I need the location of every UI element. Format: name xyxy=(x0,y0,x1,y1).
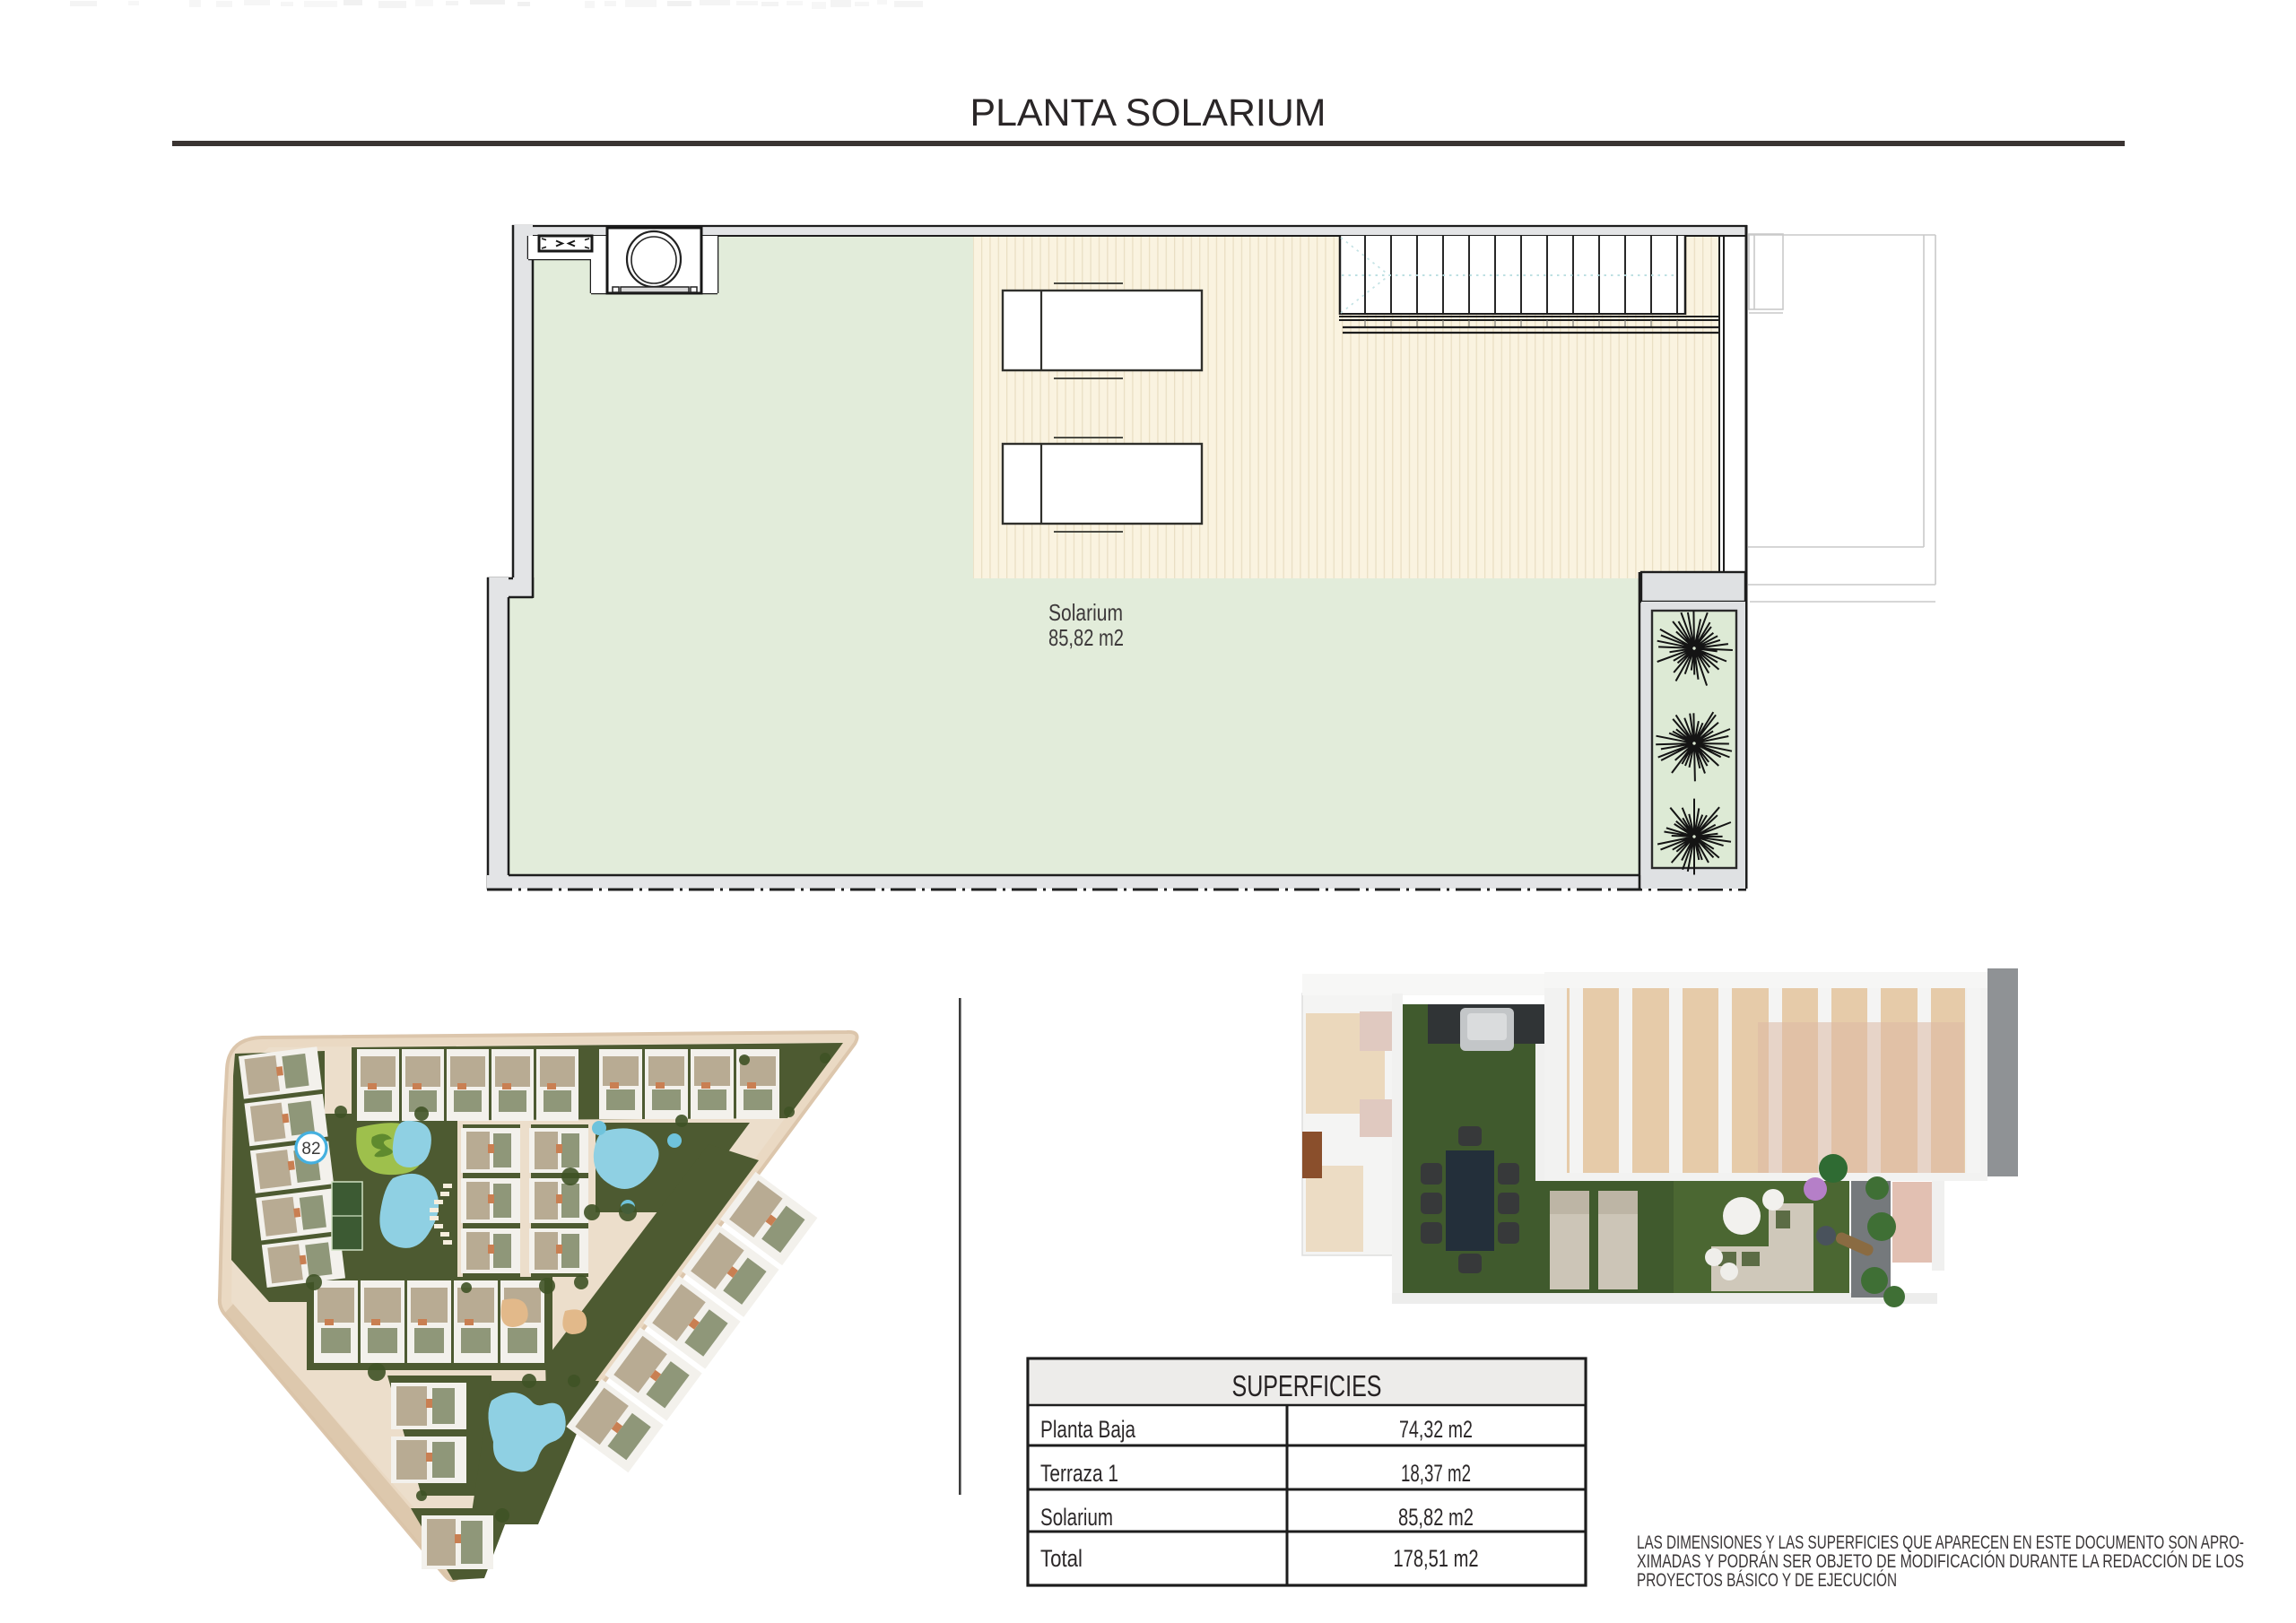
svg-text:Planta Baja: Planta Baja xyxy=(1040,1416,1136,1443)
svg-text:85,82 m2: 85,82 m2 xyxy=(1398,1504,1474,1531)
svg-text:SUPERFICIES: SUPERFICIES xyxy=(1232,1369,1382,1402)
svg-text:85,82 m2: 85,82 m2 xyxy=(1048,624,1124,651)
svg-text:74,32 m2: 74,32 m2 xyxy=(1399,1416,1473,1443)
svg-text:18,37 m2: 18,37 m2 xyxy=(1401,1460,1471,1487)
svg-text:PROYECTOS BÁSICO Y DE EJECUCIÓ: PROYECTOS BÁSICO Y DE EJECUCIÓN xyxy=(1637,1570,1897,1591)
svg-text:Solarium: Solarium xyxy=(1048,599,1123,626)
svg-text:Terraza 1: Terraza 1 xyxy=(1040,1460,1118,1487)
svg-text:178,51 m2: 178,51 m2 xyxy=(1394,1545,1479,1572)
svg-text:PLANTA SOLARIUM: PLANTA SOLARIUM xyxy=(970,91,1326,135)
svg-text:Total: Total xyxy=(1040,1545,1083,1572)
svg-text:LAS DIMENSIONES Y LAS SUPERFIC: LAS DIMENSIONES Y LAS SUPERFICIES QUE AP… xyxy=(1637,1532,2244,1553)
svg-text:Solarium: Solarium xyxy=(1040,1504,1113,1531)
svg-text:XIMADAS Y PODRÁN SER OBJETO DE: XIMADAS Y PODRÁN SER OBJETO DE MODIFICAC… xyxy=(1637,1551,2244,1572)
